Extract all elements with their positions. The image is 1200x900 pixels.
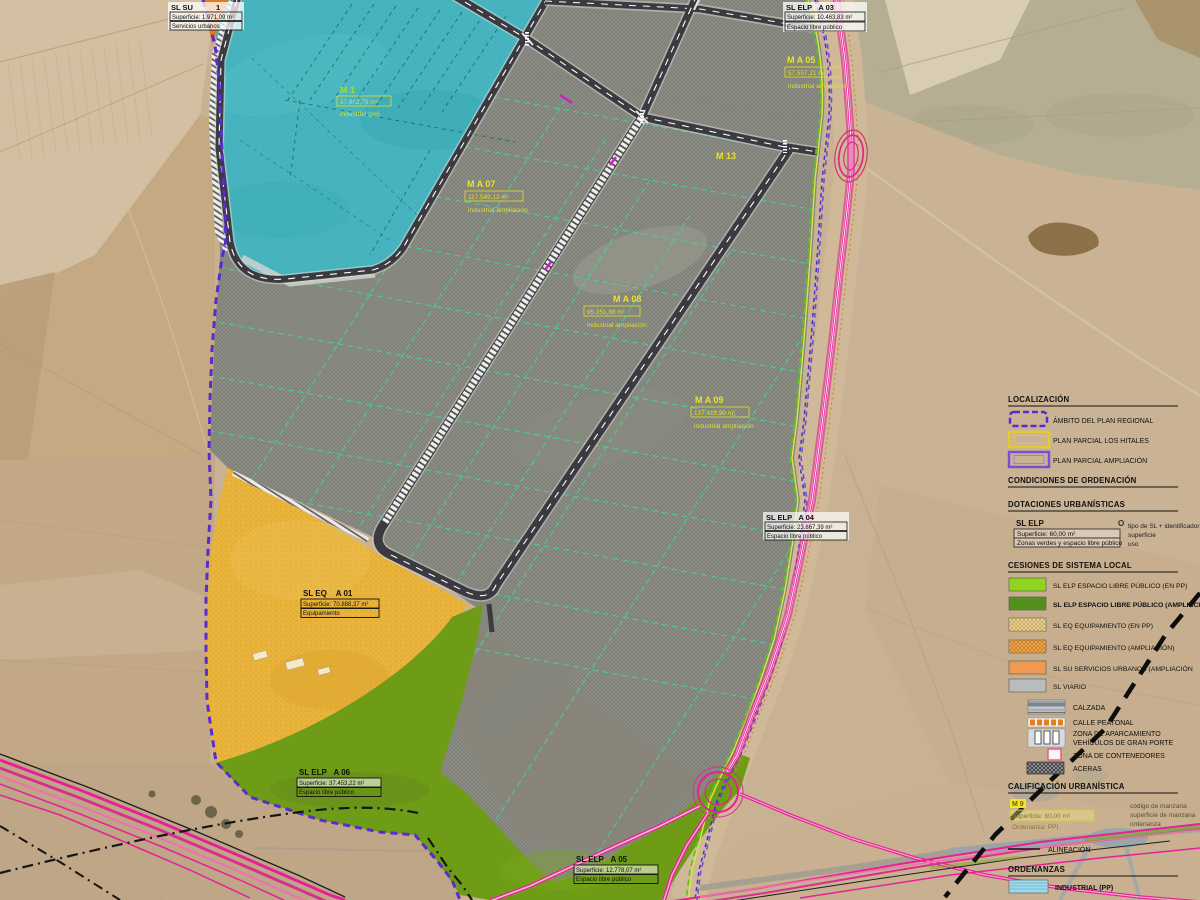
svg-text:137.419,90 m²: 137.419,90 m² [694,410,735,417]
svg-text:Espacio libre público: Espacio libre público [576,877,632,883]
svg-text:Espacio libre público: Espacio libre público [299,790,355,796]
svg-text:SL ELP ESPACIO LIBRE PÚBLICO (: SL ELP ESPACIO LIBRE PÚBLICO (EN PP) [1053,581,1187,590]
svg-text:CALZADA: CALZADA [1073,705,1106,712]
svg-text:M 9: M 9 [1012,801,1024,808]
svg-text:industrial ampliación: industrial ampliación [788,83,848,90]
svg-text:Espacio libre público: Espacio libre público [767,534,823,540]
svg-text:SL EQ EQUIPAMIENTO (EN PP): SL EQ EQUIPAMIENTO (EN PP) [1053,623,1153,630]
svg-text:ZONA DE APARCAMIENTO: ZONA DE APARCAMIENTO [1073,731,1161,738]
svg-text:INDUSTRIAL (PP): INDUSTRIAL (PP) [1055,885,1113,892]
svg-text:PLAN PARCIAL AMPLIACIÓN: PLAN PARCIAL AMPLIACIÓN [1053,456,1147,465]
svg-text:código de manzana: código de manzana [1130,803,1187,810]
svg-text:M 1: M 1 [340,85,355,95]
svg-text:ALINEACIÓN: ALINEACIÓN [1048,845,1090,854]
svg-text:CESIONES DE SISTEMA LOCAL: CESIONES DE SISTEMA LOCAL [1008,561,1132,570]
svg-text:DOTACIONES URBANÍSTICAS: DOTACIONES URBANÍSTICAS [1008,500,1125,509]
svg-text:CALIFICACIÓN URBANÍSTICA: CALIFICACIÓN URBANÍSTICA [1008,782,1125,791]
svg-text:Superficie: 23.867,39 m²: Superficie: 23.867,39 m² [767,525,832,531]
svg-text:industrial (pp): industrial (pp) [340,111,380,118]
svg-text:uso: uso [1128,541,1139,548]
svg-text:CONDICIONES DE ORDENACIÓN: CONDICIONES DE ORDENACIÓN [1008,476,1137,485]
svg-text:Equipamiento: Equipamiento [303,611,340,617]
svg-text:M A 05: M A 05 [787,55,815,65]
svg-text:VEHÍCULOS DE GRAN PORTE: VEHÍCULOS DE GRAN PORTE [1073,738,1174,747]
svg-text:SL ELP A 06: SL ELP A 06 [299,768,351,777]
svg-text:SL ELP A 04: SL ELP A 04 [766,513,815,522]
svg-text:Servicios urbanos: Servicios urbanos [172,24,220,30]
svg-text:Superficie: 70.888,37 m²: Superficie: 70.888,37 m² [303,602,368,608]
svg-text:Superficie: 37.453,22 m²: Superficie: 37.453,22 m² [299,781,364,787]
svg-text:M A 07: M A 07 [467,179,495,189]
svg-text:Superficie: 1.971,09 m²: Superficie: 1.971,09 m² [172,15,234,21]
svg-text:Espacio libre público: Espacio libre público [787,25,843,31]
svg-text:industrial ampliación: industrial ampliación [694,423,754,430]
svg-text:SL ELP: SL ELP [1016,519,1045,528]
svg-text:SL EQ A 01: SL EQ A 01 [303,589,353,598]
svg-text:superficie: superficie [1128,532,1156,539]
svg-text:SL SU SERVICIOS URBANOS (AMPLI: SL SU SERVICIOS URBANOS (AMPLIACIÓN [1053,664,1193,673]
svg-text:M A 09: M A 09 [695,395,723,405]
svg-text:95.351,88 m²: 95.351,88 m² [587,309,625,316]
svg-text:Superficie: 60,00 m²: Superficie: 60,00 m² [1017,531,1076,538]
svg-text:Superficie: 60,00 m²: Superficie: 60,00 m² [1012,813,1071,820]
svg-text:ordenanza: ordenanza [1130,821,1161,828]
svg-text:ÁMBITO DEL PLAN REGIONAL: ÁMBITO DEL PLAN REGIONAL [1053,416,1153,425]
svg-text:superficie de manzana: superficie de manzana [1130,812,1196,819]
svg-text:SL VIARIO: SL VIARIO [1053,684,1086,691]
svg-text:Ordenanza: PPI: Ordenanza: PPI [1012,824,1058,831]
svg-text:ORDENANZAS: ORDENANZAS [1008,865,1065,874]
svg-text:PLAN PARCIAL LOS HITALES: PLAN PARCIAL LOS HITALES [1053,438,1149,445]
svg-text:1: 1 [216,3,220,12]
svg-text:Superficie: 10.463,83 m²: Superficie: 10.463,83 m² [787,15,852,21]
svg-text:ZONA DE CONTENEDORES: ZONA DE CONTENEDORES [1073,753,1165,760]
svg-text:LOCALIZACIÓN: LOCALIZACIÓN [1008,395,1069,404]
svg-text:Superficie: 12.778,07 m²: Superficie: 12.778,07 m² [576,868,641,874]
svg-text:M 13: M 13 [716,151,736,161]
svg-text:industrial ampliación: industrial ampliación [587,322,647,329]
svg-text:CALLE PEATONAL: CALLE PEATONAL [1073,720,1134,727]
svg-text:SL SU: SL SU [171,3,193,12]
svg-text:tipo de SL + identificador: tipo de SL + identificador [1128,523,1200,530]
svg-text:57.557,21 m²: 57.557,21 m² [788,70,826,77]
svg-text:M A 08: M A 08 [613,294,641,304]
svg-text:SL ELP ESPACIO LIBRE PÚBLICO (: SL ELP ESPACIO LIBRE PÚBLICO (AMPLIACIÓ [1053,600,1200,609]
svg-text:SL EQ EQUIPAMIENTO (AMPLIACIÓN: SL EQ EQUIPAMIENTO (AMPLIACIÓN) [1053,643,1174,652]
svg-text:industrial ampliación: industrial ampliación [468,207,528,214]
svg-text:57.862,75 m²: 57.862,75 m² [340,99,378,106]
svg-text:Zonas verdes y espacio libre p: Zonas verdes y espacio libre público [1017,540,1123,547]
svg-text:SL ELP A 05: SL ELP A 05 [576,855,628,864]
svg-text:ACERAS: ACERAS [1073,766,1102,773]
svg-text:SL ELP A 03: SL ELP A 03 [786,3,834,12]
svg-text:O: O [1118,519,1124,528]
svg-text:117.549,13 m²: 117.549,13 m² [468,194,509,201]
